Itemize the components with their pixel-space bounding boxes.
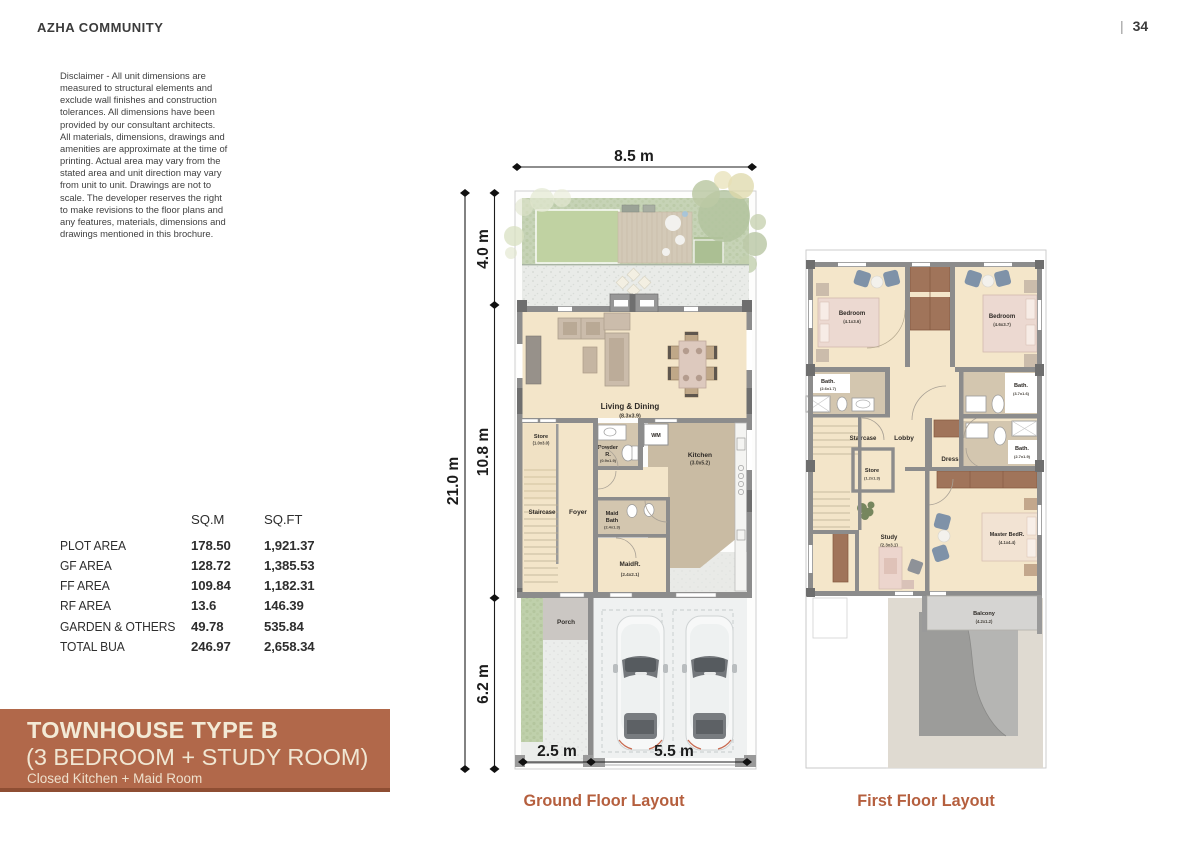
svg-text:Bath.: Bath. (821, 379, 835, 385)
svg-text:(8.3x3.9): (8.3x3.9) (619, 414, 641, 420)
svg-text:Living & Dining: Living & Dining (601, 402, 660, 411)
svg-text:(4.6x3.7): (4.6x3.7) (993, 322, 1011, 327)
svg-text:(3.7x1.6): (3.7x1.6) (1013, 391, 1030, 396)
svg-text:Master BedR.: Master BedR. (990, 532, 1025, 538)
svg-text:5.5 m: 5.5 m (654, 743, 694, 760)
svg-text:Dress: Dress (941, 456, 959, 463)
svg-text:Store: Store (534, 434, 548, 440)
svg-text:(2.4x1.3): (2.4x1.3) (604, 525, 621, 530)
svg-text:WM: WM (651, 433, 661, 439)
svg-text:(2.4x2.1): (2.4x2.1) (621, 572, 640, 577)
svg-text:Maid: Maid (606, 511, 619, 517)
svg-text:4.0 m: 4.0 m (475, 229, 492, 269)
svg-text:21.0 m: 21.0 m (445, 457, 462, 505)
svg-text:Staircase: Staircase (529, 510, 556, 516)
svg-text:Bath.: Bath. (1014, 383, 1028, 389)
svg-text:8.5 m: 8.5 m (614, 148, 654, 165)
svg-text:2.5 m: 2.5 m (537, 743, 577, 760)
svg-text:Study: Study (881, 535, 898, 541)
svg-text:(4.1x4.4): (4.1x4.4) (999, 540, 1016, 545)
svg-text:(4.2x1.2): (4.2x1.2) (976, 619, 993, 624)
svg-text:(3.0x5.2): (3.0x5.2) (690, 461, 710, 467)
svg-text:6.2 m: 6.2 m (475, 664, 492, 704)
svg-text:(2.6x1.7): (2.6x1.7) (820, 386, 837, 391)
svg-text:MaidR.: MaidR. (620, 561, 641, 568)
svg-text:Bedroom: Bedroom (989, 314, 1015, 320)
svg-text:Porch: Porch (557, 619, 575, 626)
svg-text:(4.1x3.6): (4.1x3.6) (843, 319, 861, 324)
svg-text:Kitchen: Kitchen (688, 452, 712, 459)
svg-text:(0.9x1.9): (0.9x1.9) (600, 458, 617, 463)
svg-text:Lobby: Lobby (894, 435, 914, 442)
svg-text:(2.7x1.9): (2.7x1.9) (1014, 454, 1031, 459)
svg-text:10.8 m: 10.8 m (475, 428, 492, 476)
svg-text:Foyer: Foyer (569, 509, 587, 516)
svg-text:Bath.: Bath. (1015, 446, 1029, 452)
svg-text:Bath: Bath (606, 518, 619, 524)
svg-text:Staircase: Staircase (850, 436, 877, 442)
svg-text:(1.0x3.0): (1.0x3.0) (533, 441, 550, 446)
svg-text:Balcony: Balcony (973, 611, 996, 617)
svg-text:Store: Store (865, 468, 879, 474)
svg-text:Bedroom: Bedroom (839, 311, 865, 317)
svg-text:(1.2x1.3): (1.2x1.3) (864, 476, 881, 481)
